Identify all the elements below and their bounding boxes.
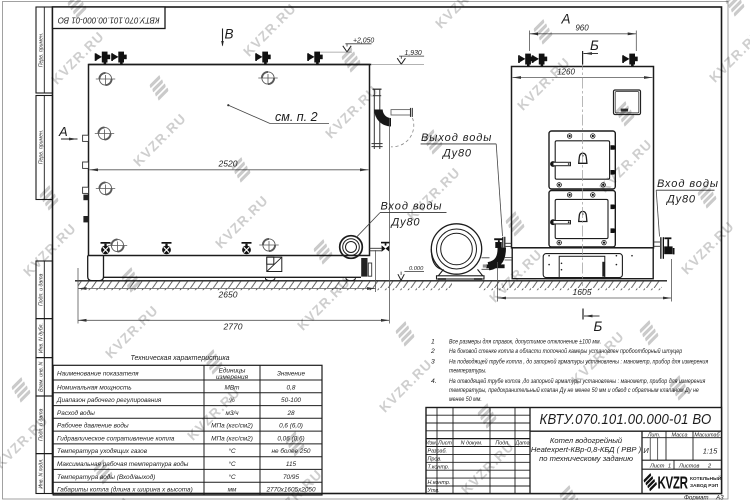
svg-text:70/95: 70/95 (283, 474, 299, 481)
svg-text:°С: °С (228, 460, 236, 468)
svg-text:°С: °С (228, 473, 236, 481)
svg-text:Взам. инв. N: Взам. инв. N (39, 361, 45, 391)
svg-text:Лист: Лист (437, 441, 452, 447)
svg-text:Масса: Масса (672, 432, 688, 438)
svg-text:Номинальная мощность: Номинальная мощность (57, 384, 132, 391)
svg-text:Н.контр.: Н.контр. (428, 480, 451, 486)
svg-text:Гидравлическое сопративление к: Гидравлическое сопративление котла (57, 434, 175, 442)
svg-text:Б: Б (594, 319, 603, 334)
svg-text:Ду80: Ду80 (665, 194, 696, 206)
svg-text:измерения: измерения (216, 374, 249, 381)
svg-text:2: 2 (430, 348, 435, 355)
svg-text:см. п. 2: см. п. 2 (275, 110, 318, 124)
svg-text:Формат: Формат (684, 495, 709, 500)
svg-text:50-100: 50-100 (281, 397, 301, 404)
svg-text:KVZR: KVZR (658, 474, 689, 493)
svg-text:Диапазон рабочего регулировани: Диапазон рабочего регулирования (56, 396, 162, 404)
svg-text:28: 28 (286, 410, 295, 417)
svg-text:А: А (561, 12, 571, 27)
svg-text:Утв.: Утв. (427, 488, 440, 494)
svg-text:Б: Б (590, 38, 599, 53)
svg-text:На подводящей трубе котла ,: На подводящей трубе котла , до запорной … (449, 358, 709, 366)
svg-text:температуры, предохранительны: температуры, предохранительный клапан Ду… (449, 387, 699, 395)
svg-text:Пров.: Пров. (428, 456, 442, 462)
svg-text:4.: 4. (431, 378, 437, 385)
svg-text:Изм.: Изм. (426, 441, 438, 447)
svg-text:0.000: 0.000 (409, 266, 424, 272)
svg-text:ЗАВОД РЭП: ЗАВОД РЭП (690, 483, 719, 489)
svg-text:В: В (225, 27, 234, 42)
svg-text:0,8: 0,8 (287, 384, 296, 391)
svg-text:Листов: Листов (678, 463, 699, 469)
svg-text:+2,050: +2,050 (353, 37, 374, 44)
svg-text:Т.контр.: Т.контр. (428, 464, 450, 470)
svg-text:Перв. примен.: Перв. примен. (39, 33, 45, 67)
svg-text:Лит.: Лит. (647, 432, 661, 438)
svg-text:Лист: Лист (649, 463, 665, 469)
svg-text:А: А (58, 124, 68, 139)
svg-text:1605: 1605 (573, 287, 592, 297)
svg-text:Габариты котла (длина х ширина: Габариты котла (длина х ширина х высота) (57, 486, 193, 494)
svg-text:Инв. N дубл.: Инв. N дубл. (39, 323, 45, 353)
svg-text:Ду80: Ду80 (441, 147, 472, 159)
svg-text:960: 960 (575, 24, 589, 33)
svg-text:МПа (кгс/см2): МПа (кгс/см2) (211, 423, 253, 430)
svg-text:Дата: Дата (514, 441, 529, 447)
svg-text:Перв. примен.: Перв. примен. (39, 130, 45, 164)
svg-text:На боковой стенке котла в обла: На боковой стенке котла в области топочн… (449, 348, 683, 356)
svg-text:2650: 2650 (218, 290, 238, 300)
svg-text:КВТУ.070.101.00.000-01 ВО: КВТУ.070.101.00.000-01 ВО (540, 412, 712, 428)
svg-text:Инв. N подл.: Инв. N подл. (39, 458, 45, 488)
svg-text:N докум.: N докум. (461, 441, 483, 447)
svg-text:температуры.: температуры. (449, 368, 487, 375)
svg-text:Подп. и дата: Подп. и дата (39, 273, 45, 306)
svg-text:Рабочее давление воды: Рабочее давление воды (57, 422, 129, 430)
svg-text:2770: 2770 (223, 322, 243, 332)
svg-text:Наименование показателя: Наименование показателя (57, 371, 139, 378)
svg-text:КВТУ.070.101.00.000-01 ВО: КВТУ.070.101.00.000-01 ВО (58, 16, 160, 25)
svg-text:Масштаб: Масштаб (694, 432, 720, 438)
svg-text:1: 1 (668, 463, 671, 469)
svg-text:1: 1 (431, 338, 435, 345)
svg-text:Значение: Значение (277, 371, 305, 378)
svg-text:по техническому заданию: по техническому заданию (539, 454, 633, 463)
svg-text:не более 250: не более 250 (271, 447, 310, 455)
svg-text:°С: °С (228, 447, 236, 455)
svg-text:Температура уходящих газов: Температура уходящих газов (57, 447, 148, 455)
svg-text:Расход воды: Расход воды (57, 409, 95, 417)
svg-text:м3/ч: м3/ч (225, 410, 239, 417)
svg-text:менее 50 мм.: менее 50 мм. (449, 397, 482, 404)
svg-text:Разраб.: Разраб. (428, 449, 448, 455)
svg-text:МПа (кгс/см2): МПа (кгс/см2) (211, 435, 253, 442)
svg-text:115: 115 (286, 461, 297, 468)
svg-text:Максимальная рабочая температу: Максимальная рабочая температура воды (57, 460, 189, 468)
svg-text:Heatexpert-КВр-0,8-КБД ( РВР ): Heatexpert-КВр-0,8-КБД ( РВР ) (531, 445, 642, 454)
svg-text:А3: А3 (715, 495, 724, 500)
svg-text:Котел водогрейный: Котел водогрейный (550, 436, 623, 445)
svg-text:Все размеры для справок, допу: Все размеры для справок, допустимое откл… (449, 339, 601, 346)
svg-text:И: И (643, 446, 649, 455)
svg-text:0,6 (6,0): 0,6 (6,0) (279, 423, 303, 430)
svg-text:мм: мм (228, 487, 237, 494)
svg-text:1:15: 1:15 (703, 447, 718, 456)
